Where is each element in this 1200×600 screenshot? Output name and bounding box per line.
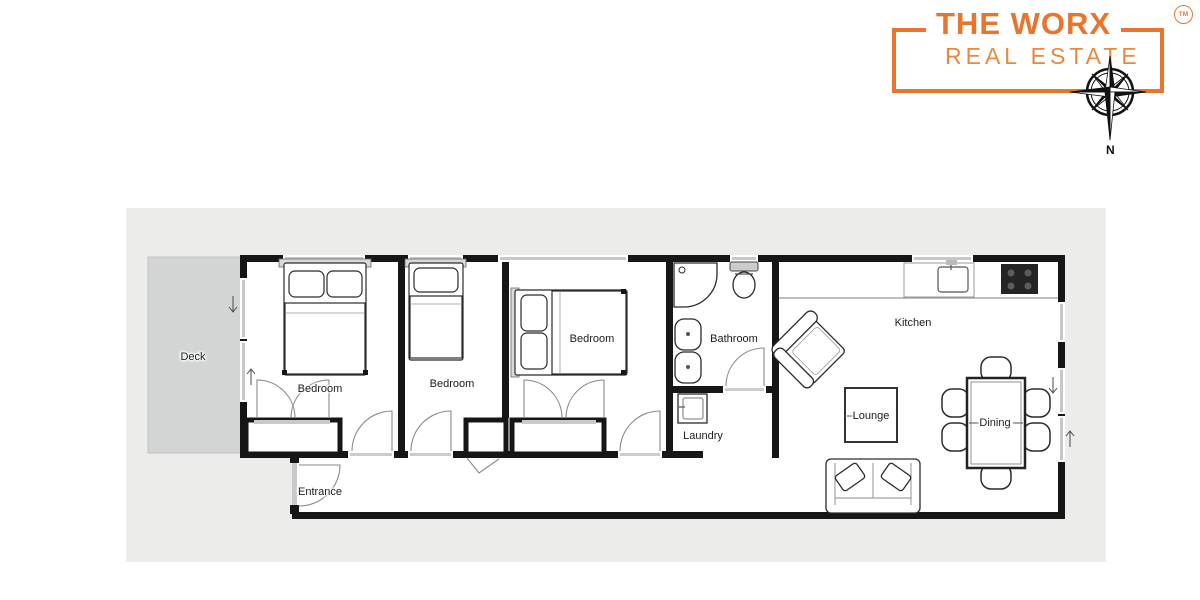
floorplan-page: Deck Bedroom Bedroom Bedroom Bathroom La…: [0, 0, 1200, 600]
room-label-kitchen: Kitchen: [895, 317, 932, 329]
closet-bedroom-3: [512, 420, 604, 454]
double-bed-icon: [279, 259, 371, 375]
hall-cupboard: [466, 420, 506, 454]
room-label-bathroom: Bathroom: [710, 333, 758, 345]
single-bed-icon: [405, 259, 466, 360]
room-label-bedroom-1: Bedroom: [298, 383, 343, 395]
room-label-bedroom-3: Bedroom: [570, 333, 615, 345]
room-label-laundry: Laundry: [683, 430, 723, 442]
room-label-lounge: Lounge: [853, 410, 890, 422]
laundry-tub-icon: [678, 394, 707, 423]
trademark-icon: TM: [1174, 5, 1193, 24]
entrance-door-panel: [292, 463, 297, 505]
logo-title: THE WORX: [926, 6, 1121, 42]
room-label-entrance: Entrance: [298, 486, 342, 498]
compass-north-label: N: [1106, 143, 1115, 157]
room-label-dining: Dining: [979, 417, 1010, 429]
sofa-icon: [826, 459, 920, 513]
closet-bedroom-1: [246, 420, 340, 454]
compass-icon: N: [1062, 42, 1172, 160]
cooktop-icon: [1001, 264, 1038, 294]
room-label-deck: Deck: [180, 351, 205, 363]
room-label-bedroom-2: Bedroom: [430, 378, 475, 390]
